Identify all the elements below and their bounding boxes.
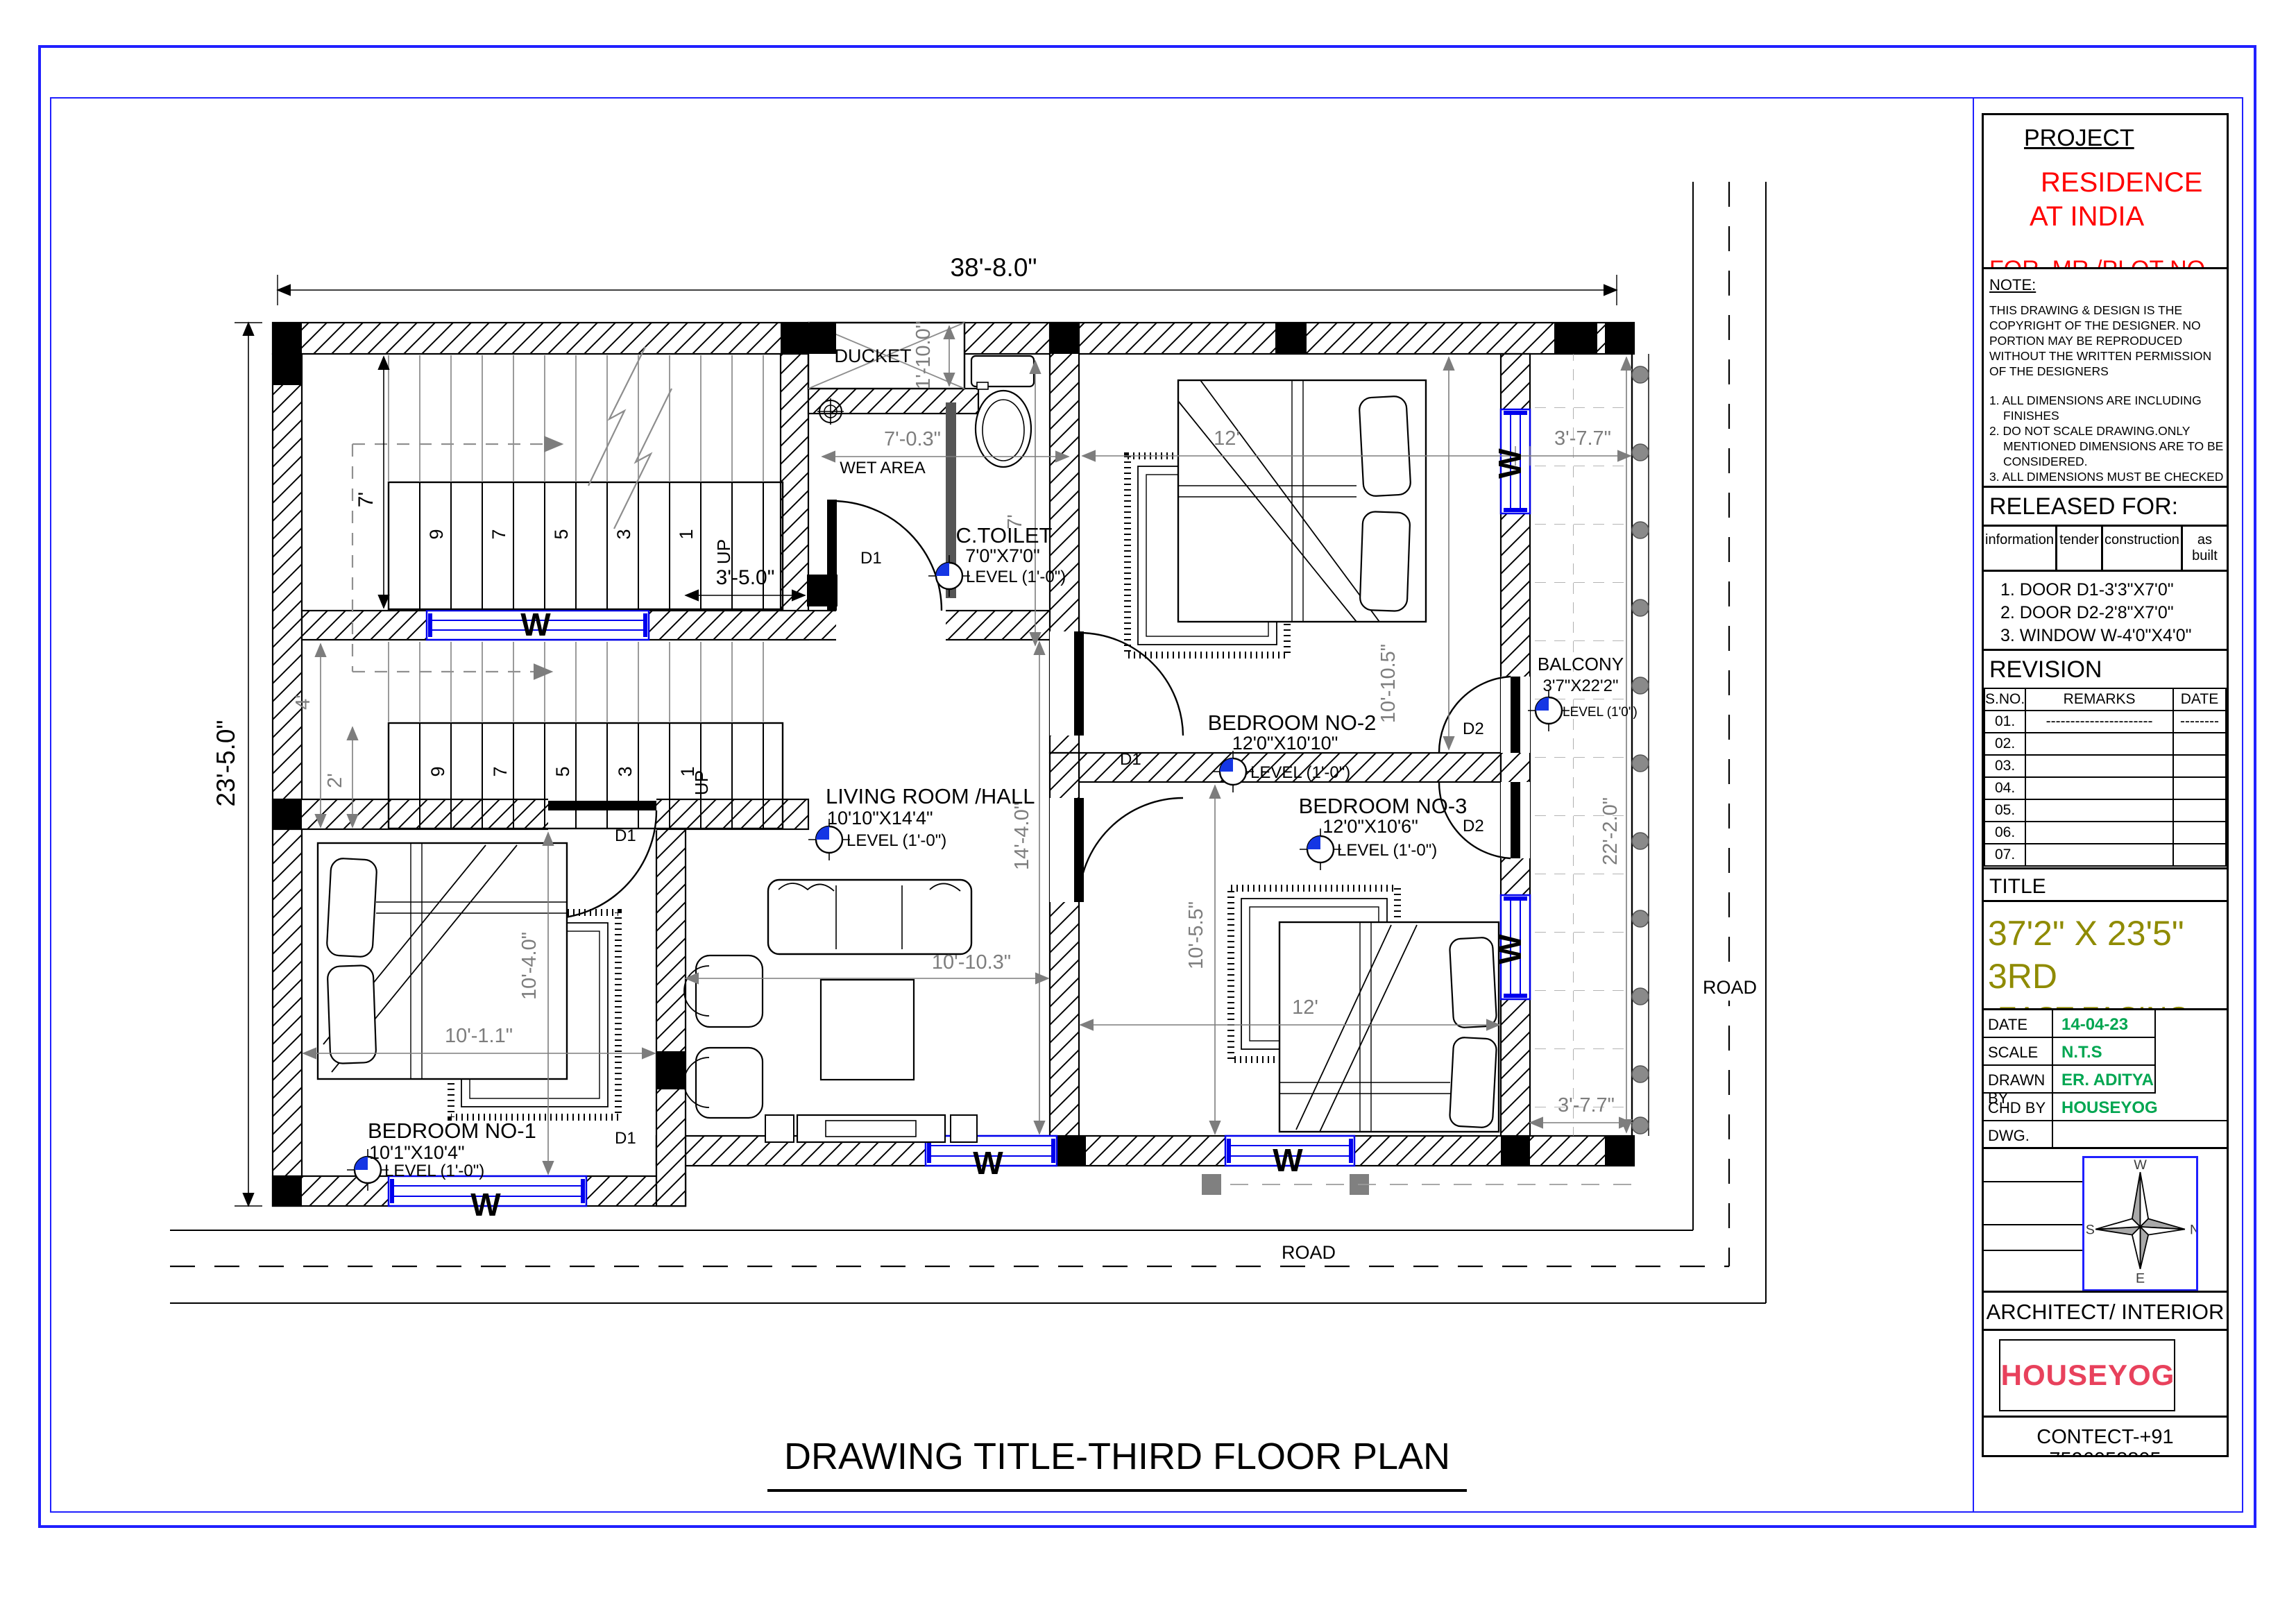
label-balcony: BALCONY xyxy=(1538,654,1624,674)
note-item: 3. ALL DIMENSIONS MUST BE CHECKED BEFORE… xyxy=(1989,469,2224,488)
up-label-1: UP xyxy=(713,539,734,564)
schedule-item: 3. WINDOW W-4'0"X4'0" xyxy=(2000,624,2227,647)
revision-col-sno: S.NO. xyxy=(1984,688,2025,711)
project-name-line2: AT INDIA xyxy=(2030,201,2227,232)
svg-text:3'-7.7": 3'-7.7" xyxy=(1554,427,1611,450)
label-bedroom3: BEDROOM NO-3 xyxy=(1299,794,1468,818)
svg-text:LEVEL (1'-0"): LEVEL (1'-0") xyxy=(384,1162,484,1180)
revision-row: 02. xyxy=(1984,733,2226,755)
svg-text:22'-2.0": 22'-2.0" xyxy=(1599,797,1622,865)
meta-label-scale: SCALE xyxy=(1984,1038,2053,1064)
svg-text:9: 9 xyxy=(426,529,447,539)
road-label-right: ROAD xyxy=(1703,977,1757,998)
svg-text:LEVEL (1'-0"): LEVEL (1'-0") xyxy=(847,831,946,850)
svg-text:3'-5.0": 3'-5.0" xyxy=(716,566,775,589)
floor-plan-canvas: 9 7 5 3 1 9 7 5 3 1 UP UP xyxy=(0,0,2296,1623)
svg-text:W: W xyxy=(1492,934,1528,965)
logo-box: HOUSEYOG xyxy=(1999,1339,2175,1411)
door-bedroom3-entry xyxy=(1074,798,1183,902)
svg-text:10'10"X14'4": 10'10"X14'4" xyxy=(827,808,933,829)
released-option-asbuilt: as built xyxy=(2183,527,2227,570)
svg-text:1: 1 xyxy=(676,529,697,539)
svg-text:W: W xyxy=(1273,1142,1303,1178)
label-toilet: C.TOILET xyxy=(956,523,1053,547)
door-corridor xyxy=(1074,631,1183,736)
svg-text:3: 3 xyxy=(613,529,634,539)
label-wet-area: WET AREA xyxy=(840,459,926,477)
drawing-floor: 3RD xyxy=(1988,956,2227,996)
svg-text:7': 7' xyxy=(355,492,377,507)
meta-label-date: DATE xyxy=(1984,1010,2053,1037)
note-heading: NOTE: xyxy=(1989,276,2227,294)
architect-heading: ARCHITECT/ INTERIOR DESIGN xyxy=(1984,1293,2227,1331)
svg-text:10'-4.0": 10'-4.0" xyxy=(518,932,541,1000)
project-for-line: FOR. MR /PLOT NO. xyxy=(1989,256,2227,269)
revision-row: 03. xyxy=(1984,755,2226,777)
label-bedroom1: BEDROOM NO-1 xyxy=(368,1119,536,1143)
svg-text:12': 12' xyxy=(1214,427,1240,450)
label-ducket: DUCKET xyxy=(834,346,911,366)
svg-text:LEVEL (1'-0"): LEVEL (1'-0") xyxy=(1250,763,1350,782)
bedroom2-bed xyxy=(1178,380,1426,622)
svg-text:2': 2' xyxy=(324,773,346,788)
meta-label-drawnby: DRAWN BY xyxy=(1984,1066,2053,1092)
project-name-line1: RESIDENCE xyxy=(2041,167,2227,198)
meta-section: DATE 14-04-23 SCALE N.T.S DRAWN BY ER. A… xyxy=(1984,1010,2227,1149)
svg-text:LEVEL (1'-0"): LEVEL (1'-0") xyxy=(966,568,1066,586)
road-label-bottom: ROAD xyxy=(1282,1242,1336,1263)
svg-text:W: W xyxy=(470,1187,501,1223)
revision-row: 05. xyxy=(1984,799,2226,822)
revision-table: S.NO. REMARKS DATE 01.------------------… xyxy=(1984,688,2227,867)
svg-text:LEVEL (1'-0"): LEVEL (1'-0") xyxy=(1337,841,1437,860)
svg-text:D2: D2 xyxy=(1463,817,1484,835)
meta-value-dwgno xyxy=(2053,1121,2227,1147)
released-option-information: information xyxy=(1984,527,2057,570)
svg-text:4': 4' xyxy=(292,695,314,710)
svg-text:W: W xyxy=(1492,448,1528,479)
schedule-item: 1. DOOR D1-3'3"X7'0" xyxy=(2000,579,2227,602)
logo-section: HOUSEYOG xyxy=(1984,1331,2227,1418)
released-heading: RELEASED FOR: xyxy=(1989,493,2227,520)
drawing-title-section: 37'2" X 23'5" 3RD EAST FACING xyxy=(1984,902,2227,1010)
svg-text:1'-10.0": 1'-10.0" xyxy=(912,321,935,389)
railing-posts xyxy=(1632,366,1649,1134)
title-label-cell: TITLE xyxy=(1984,869,2227,902)
compass-west: W xyxy=(2134,1158,2147,1173)
revision-row: 04. xyxy=(1984,777,2226,799)
compass-north: N xyxy=(2190,1223,2196,1238)
svg-text:D2: D2 xyxy=(1463,720,1484,738)
revision-row: 01.------------------------------ xyxy=(1984,711,2226,733)
compass-rose: W N S E xyxy=(2084,1158,2196,1289)
schedule-item: 2. DOOR D2-2'8"X7'0" xyxy=(2000,602,2227,624)
balcony-floor xyxy=(1530,354,1649,1136)
toilet-fixture xyxy=(971,356,1034,467)
svg-text:10'-10.3": 10'-10.3" xyxy=(932,951,1011,974)
svg-text:D1: D1 xyxy=(615,826,636,845)
note-section: NOTE: THIS DRAWING & DESIGN IS THE COPYR… xyxy=(1984,269,2227,488)
contact-line: CONTECT-+91 7596058805 xyxy=(1984,1418,2227,1457)
compass-section: W N S E xyxy=(1984,1149,2227,1293)
label-living: LIVING ROOM /HALL xyxy=(826,784,1035,808)
drawing-facing: EAST FACING xyxy=(1998,1001,2227,1010)
compass-south: S xyxy=(2086,1223,2095,1238)
svg-text:D1: D1 xyxy=(615,1129,636,1148)
note-item: 2. DO NOT SCALE DRAWING.ONLY MENTIONED D… xyxy=(1989,423,2224,469)
door-toilet xyxy=(827,500,942,611)
logo-text: HOUSEYOG xyxy=(2001,1359,2175,1392)
svg-text:D1: D1 xyxy=(860,549,882,568)
drawing-size: 37'2" X 23'5" xyxy=(1988,913,2227,953)
svg-text:10'1"X10'4": 10'1"X10'4" xyxy=(369,1142,465,1163)
svg-text:5: 5 xyxy=(551,529,572,539)
svg-text:7'-0.3": 7'-0.3" xyxy=(884,428,941,450)
compass-box: W N S E xyxy=(2082,1156,2198,1291)
up-label-2: UP xyxy=(691,770,712,795)
svg-text:3'7"X22'2": 3'7"X22'2" xyxy=(1543,677,1619,695)
project-heading: PROJECT xyxy=(2024,125,2227,152)
dim-overall-width: 38'-8.0" xyxy=(950,253,1037,282)
meta-empty-cell xyxy=(2154,1010,2227,1094)
dim-overall-height: 23'-5.0" xyxy=(212,720,240,806)
svg-text:7'0"X7'0": 7'0"X7'0" xyxy=(965,545,1040,566)
svg-text:12': 12' xyxy=(1292,996,1318,1019)
revision-row: 06. xyxy=(1984,822,2226,844)
svg-text:3'-7.7": 3'-7.7" xyxy=(1558,1094,1615,1116)
revision-col-date: DATE xyxy=(2173,688,2226,711)
revision-heading: REVISION xyxy=(1989,656,2227,683)
drawing-title: DRAWING TITLE-THIRD FLOOR PLAN xyxy=(763,1435,1471,1492)
svg-text:10'-1.1": 10'-1.1" xyxy=(445,1025,513,1047)
svg-text:12'0"X10'10": 12'0"X10'10" xyxy=(1232,733,1338,754)
porch-posts xyxy=(1202,1174,1632,1195)
drawing-sheet: 9 7 5 3 1 9 7 5 3 1 UP UP xyxy=(0,0,2296,1623)
svg-text:9: 9 xyxy=(427,766,448,776)
project-section: PROJECT RESIDENCE AT INDIA FOR. MR /PLOT… xyxy=(1984,115,2227,269)
living-furniture xyxy=(684,880,977,1142)
meta-value-chdby: HOUSEYOG xyxy=(2053,1094,2227,1120)
bedroom3-bed xyxy=(1279,922,1499,1132)
svg-text:10'-10.5": 10'-10.5" xyxy=(1377,644,1400,723)
note-item: 1. ALL DIMENSIONS ARE INCLUDING FINISHES xyxy=(1989,393,2224,423)
svg-text:5: 5 xyxy=(552,766,573,776)
revision-col-remarks: REMARKS xyxy=(2025,688,2173,711)
revision-row: 07. xyxy=(1984,844,2226,866)
label-bedroom2: BEDROOM NO-2 xyxy=(1208,711,1377,735)
released-section: RELEASED FOR: information tender constru… xyxy=(1984,488,2227,651)
svg-text:D1: D1 xyxy=(1120,750,1141,769)
released-option-tender: tender xyxy=(2057,527,2103,570)
title-block: PROJECT RESIDENCE AT INDIA FOR. MR /PLOT… xyxy=(1982,113,2229,1457)
svg-text:14'-4.0": 14'-4.0" xyxy=(1011,802,1033,870)
compass-east: E xyxy=(2136,1271,2145,1286)
svg-text:LEVEL (1'0"): LEVEL (1'0") xyxy=(1563,705,1638,720)
note-body: THIS DRAWING & DESIGN IS THE COPYRIGHT O… xyxy=(1989,303,2222,379)
svg-text:7: 7 xyxy=(490,766,511,776)
svg-text:7: 7 xyxy=(488,529,509,539)
revision-section: REVISION S.NO. REMARKS DATE 01.---------… xyxy=(1984,651,2227,869)
meta-label-chdby: CHD BY xyxy=(1984,1094,2053,1120)
released-option-construction: construction xyxy=(2103,527,2183,570)
svg-text:12'0"X10'6": 12'0"X10'6" xyxy=(1323,816,1418,837)
svg-text:W: W xyxy=(973,1145,1003,1181)
svg-text:10'-5.5": 10'-5.5" xyxy=(1185,901,1207,969)
svg-text:W: W xyxy=(520,606,551,643)
meta-label-dwgno: DWG. NO. xyxy=(1984,1121,2053,1147)
svg-text:3: 3 xyxy=(615,766,636,776)
